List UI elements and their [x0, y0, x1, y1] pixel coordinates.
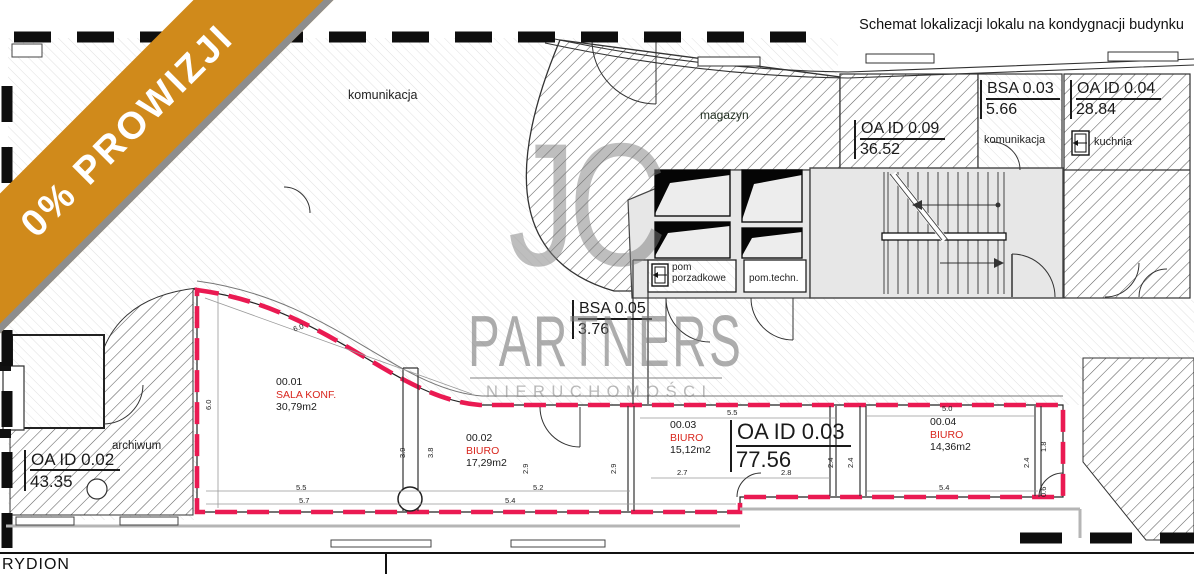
zone-label-technical-room: pom.techn.: [749, 273, 798, 284]
area-tag-bsa-0-05: BSA 0.05 3.76: [572, 300, 652, 339]
title-block-divider: [0, 552, 1194, 554]
area-value: 43.35: [30, 471, 120, 491]
dimension: 5.7: [299, 496, 309, 505]
room-number: 00.04: [930, 416, 971, 429]
area-tag-oa-id-0-04: OA ID 0.04 28.84: [1070, 80, 1161, 119]
dimension: 2.9: [609, 464, 618, 474]
area-tag-bsa-0-03: BSA 0.03 5.66: [980, 80, 1060, 119]
dimension: 3.9: [398, 448, 407, 458]
dimension: 6.0: [204, 400, 213, 410]
room-card-00-02: 00.02 BIURO 17,29m2: [466, 432, 507, 470]
kitchen-door-icon: [1072, 131, 1089, 155]
room-number: 00.03: [670, 419, 711, 432]
area-tag-oa-id-0-09: OA ID 0.09 36.52: [854, 120, 945, 159]
room-area: 17,29m2: [466, 457, 507, 470]
dimension: 0.6: [1039, 487, 1048, 497]
area-value: 3.76: [578, 320, 652, 339]
floor-plan-page: JC PARTNERS NIERUCHOMOŚCI Schemat lokali…: [0, 0, 1194, 574]
room-number: 00.01: [276, 376, 336, 389]
room-type: BIURO: [466, 445, 507, 458]
dimension: 2.7: [677, 468, 687, 477]
cleaning-room-line1: pom: [672, 263, 726, 274]
dimension: 2.8: [781, 468, 791, 477]
room-type: SALA KONF.: [276, 389, 336, 402]
dimension: 3.8: [426, 448, 435, 458]
area-id: OA ID 0.09: [860, 120, 945, 140]
dimension: 2.4: [826, 458, 835, 468]
room-type: BIURO: [670, 432, 711, 445]
dimension: 2.9: [521, 464, 530, 474]
area-id: BSA 0.05: [578, 300, 652, 320]
room-card-00-01: 00.01 SALA KONF. 30,79m2: [276, 376, 336, 414]
area-id: OA ID 0.02: [30, 450, 120, 471]
page-title: Schemat lokalizacji lokalu na kondygnacj…: [859, 17, 1184, 33]
area-id: OA ID 0.03: [736, 420, 851, 447]
dimension: 5.5: [296, 483, 306, 492]
area-value: 5.66: [986, 100, 1060, 119]
area-id: BSA 0.03: [986, 80, 1060, 100]
room-type: BIURO: [930, 429, 971, 442]
project-name: RYDION: [2, 556, 70, 574]
room-area: 15,12m2: [670, 444, 711, 457]
zone-label-kitchen: kuchnia: [1094, 136, 1132, 148]
zone-label-corridor-small: komunikacja: [984, 134, 1045, 146]
cleaning-room-line2: porzadkowe: [672, 274, 726, 285]
dimension: 5.2: [533, 483, 543, 492]
dimension: 5.0: [942, 404, 952, 413]
room-area: 30,79m2: [276, 401, 336, 414]
dimension: 5.4: [939, 483, 949, 492]
zone-label-storage: magazyn: [700, 108, 749, 122]
zone-label-corridor: komunikacja: [348, 88, 417, 102]
dimension: 5.5: [727, 408, 737, 417]
room-area: 14,36m2: [930, 441, 971, 454]
dimension: 5.4: [505, 496, 515, 505]
title-block-separator: [385, 552, 387, 574]
dimension: 1.8: [1039, 442, 1048, 452]
room-card-00-03: 00.03 BIURO 15,12m2: [670, 419, 711, 457]
area-id: OA ID 0.04: [1076, 80, 1161, 100]
room-card-00-04: 00.04 BIURO 14,36m2: [930, 416, 971, 454]
zone-label-cleaning-room: pom porzadkowe: [672, 263, 726, 284]
dimension: 2.4: [846, 458, 855, 468]
area-tag-oa-id-0-02: OA ID 0.02 43.35: [24, 450, 120, 491]
area-value: 28.84: [1076, 100, 1161, 119]
dimension: 2.4: [1022, 458, 1031, 468]
ramp-boxes: [655, 170, 802, 258]
area-value: 36.52: [860, 140, 945, 159]
room-number: 00.02: [466, 432, 507, 445]
